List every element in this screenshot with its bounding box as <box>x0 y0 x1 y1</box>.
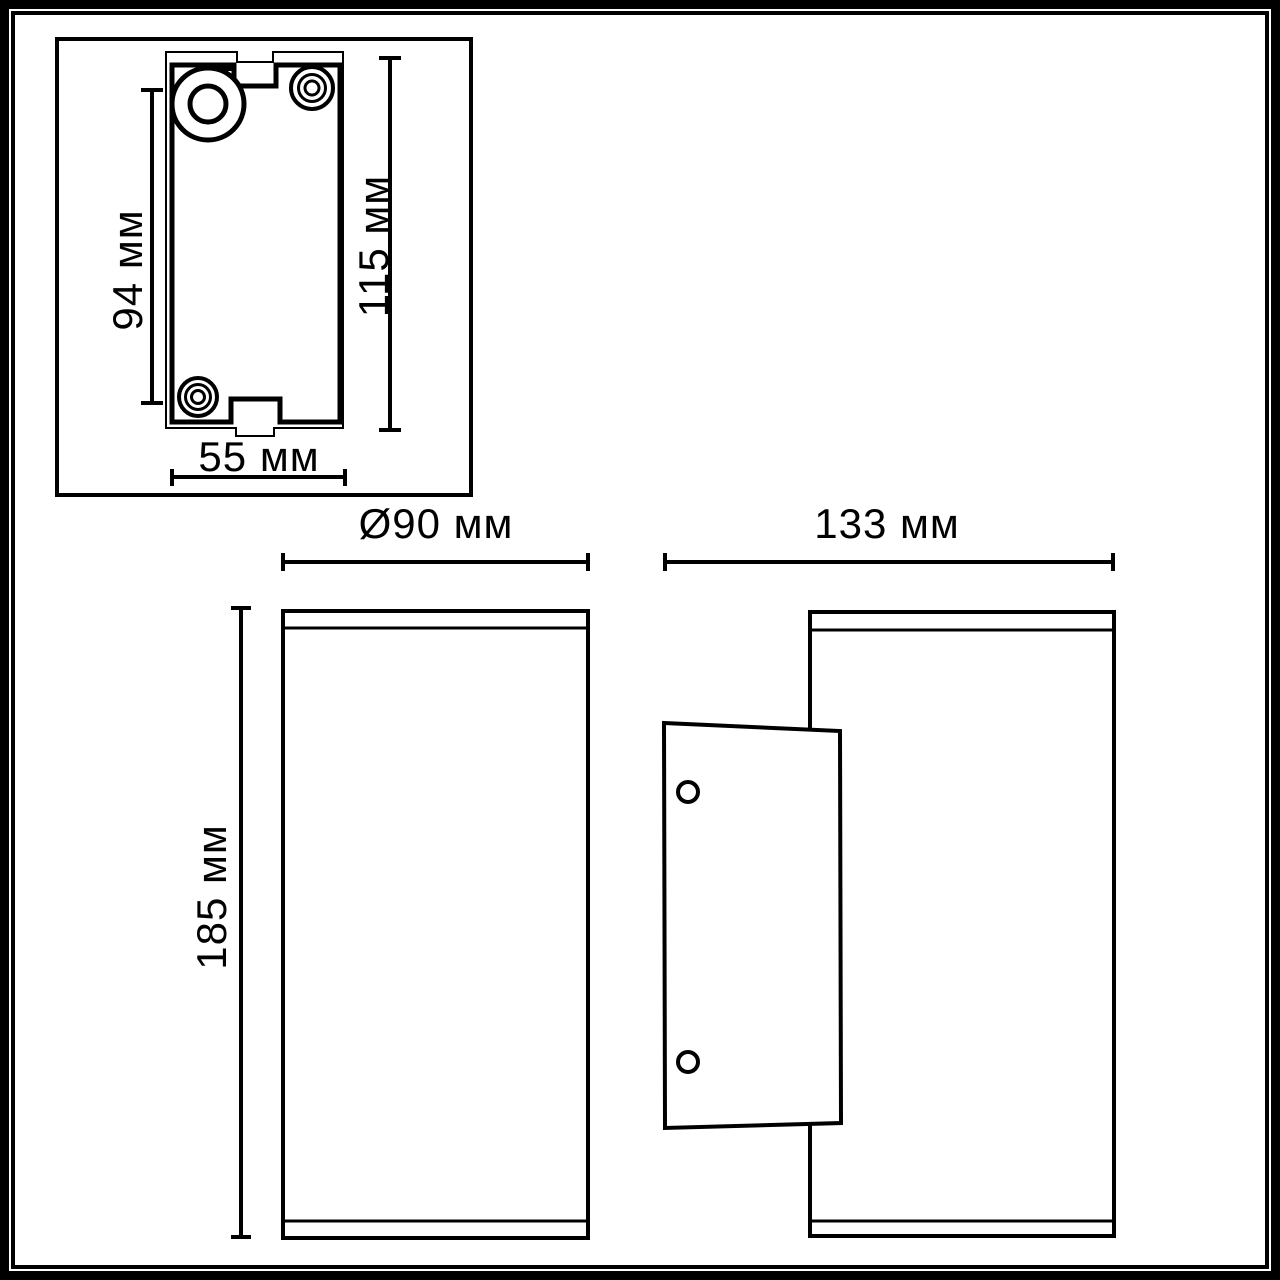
bracket-hole-top <box>678 782 698 802</box>
lamp-body-front <box>283 611 588 1238</box>
technical-drawing-page: 94 мм 115 мм 55 мм Ø90 мм 185 мм 133 мм <box>0 0 1280 1280</box>
front-view <box>231 553 588 1238</box>
dimension-label-115mm: 115 мм <box>353 175 395 317</box>
screw-hole-top <box>291 67 333 109</box>
bracket-hole-bottom <box>678 1052 698 1072</box>
dimension-label-55mm: 55 мм <box>198 436 319 478</box>
dimension-label-133mm: 133 мм <box>814 503 960 545</box>
dimension-label-185mm: 185 мм <box>191 824 233 970</box>
keyhole-opening <box>172 68 244 140</box>
dimension-label-94mm: 94 мм <box>107 209 149 330</box>
lamp-body-side <box>810 612 1114 1236</box>
screw-hole-bottom <box>179 378 217 416</box>
drawing-linework <box>0 0 1280 1280</box>
dimension-label-d90mm: Ø90 мм <box>359 503 514 545</box>
